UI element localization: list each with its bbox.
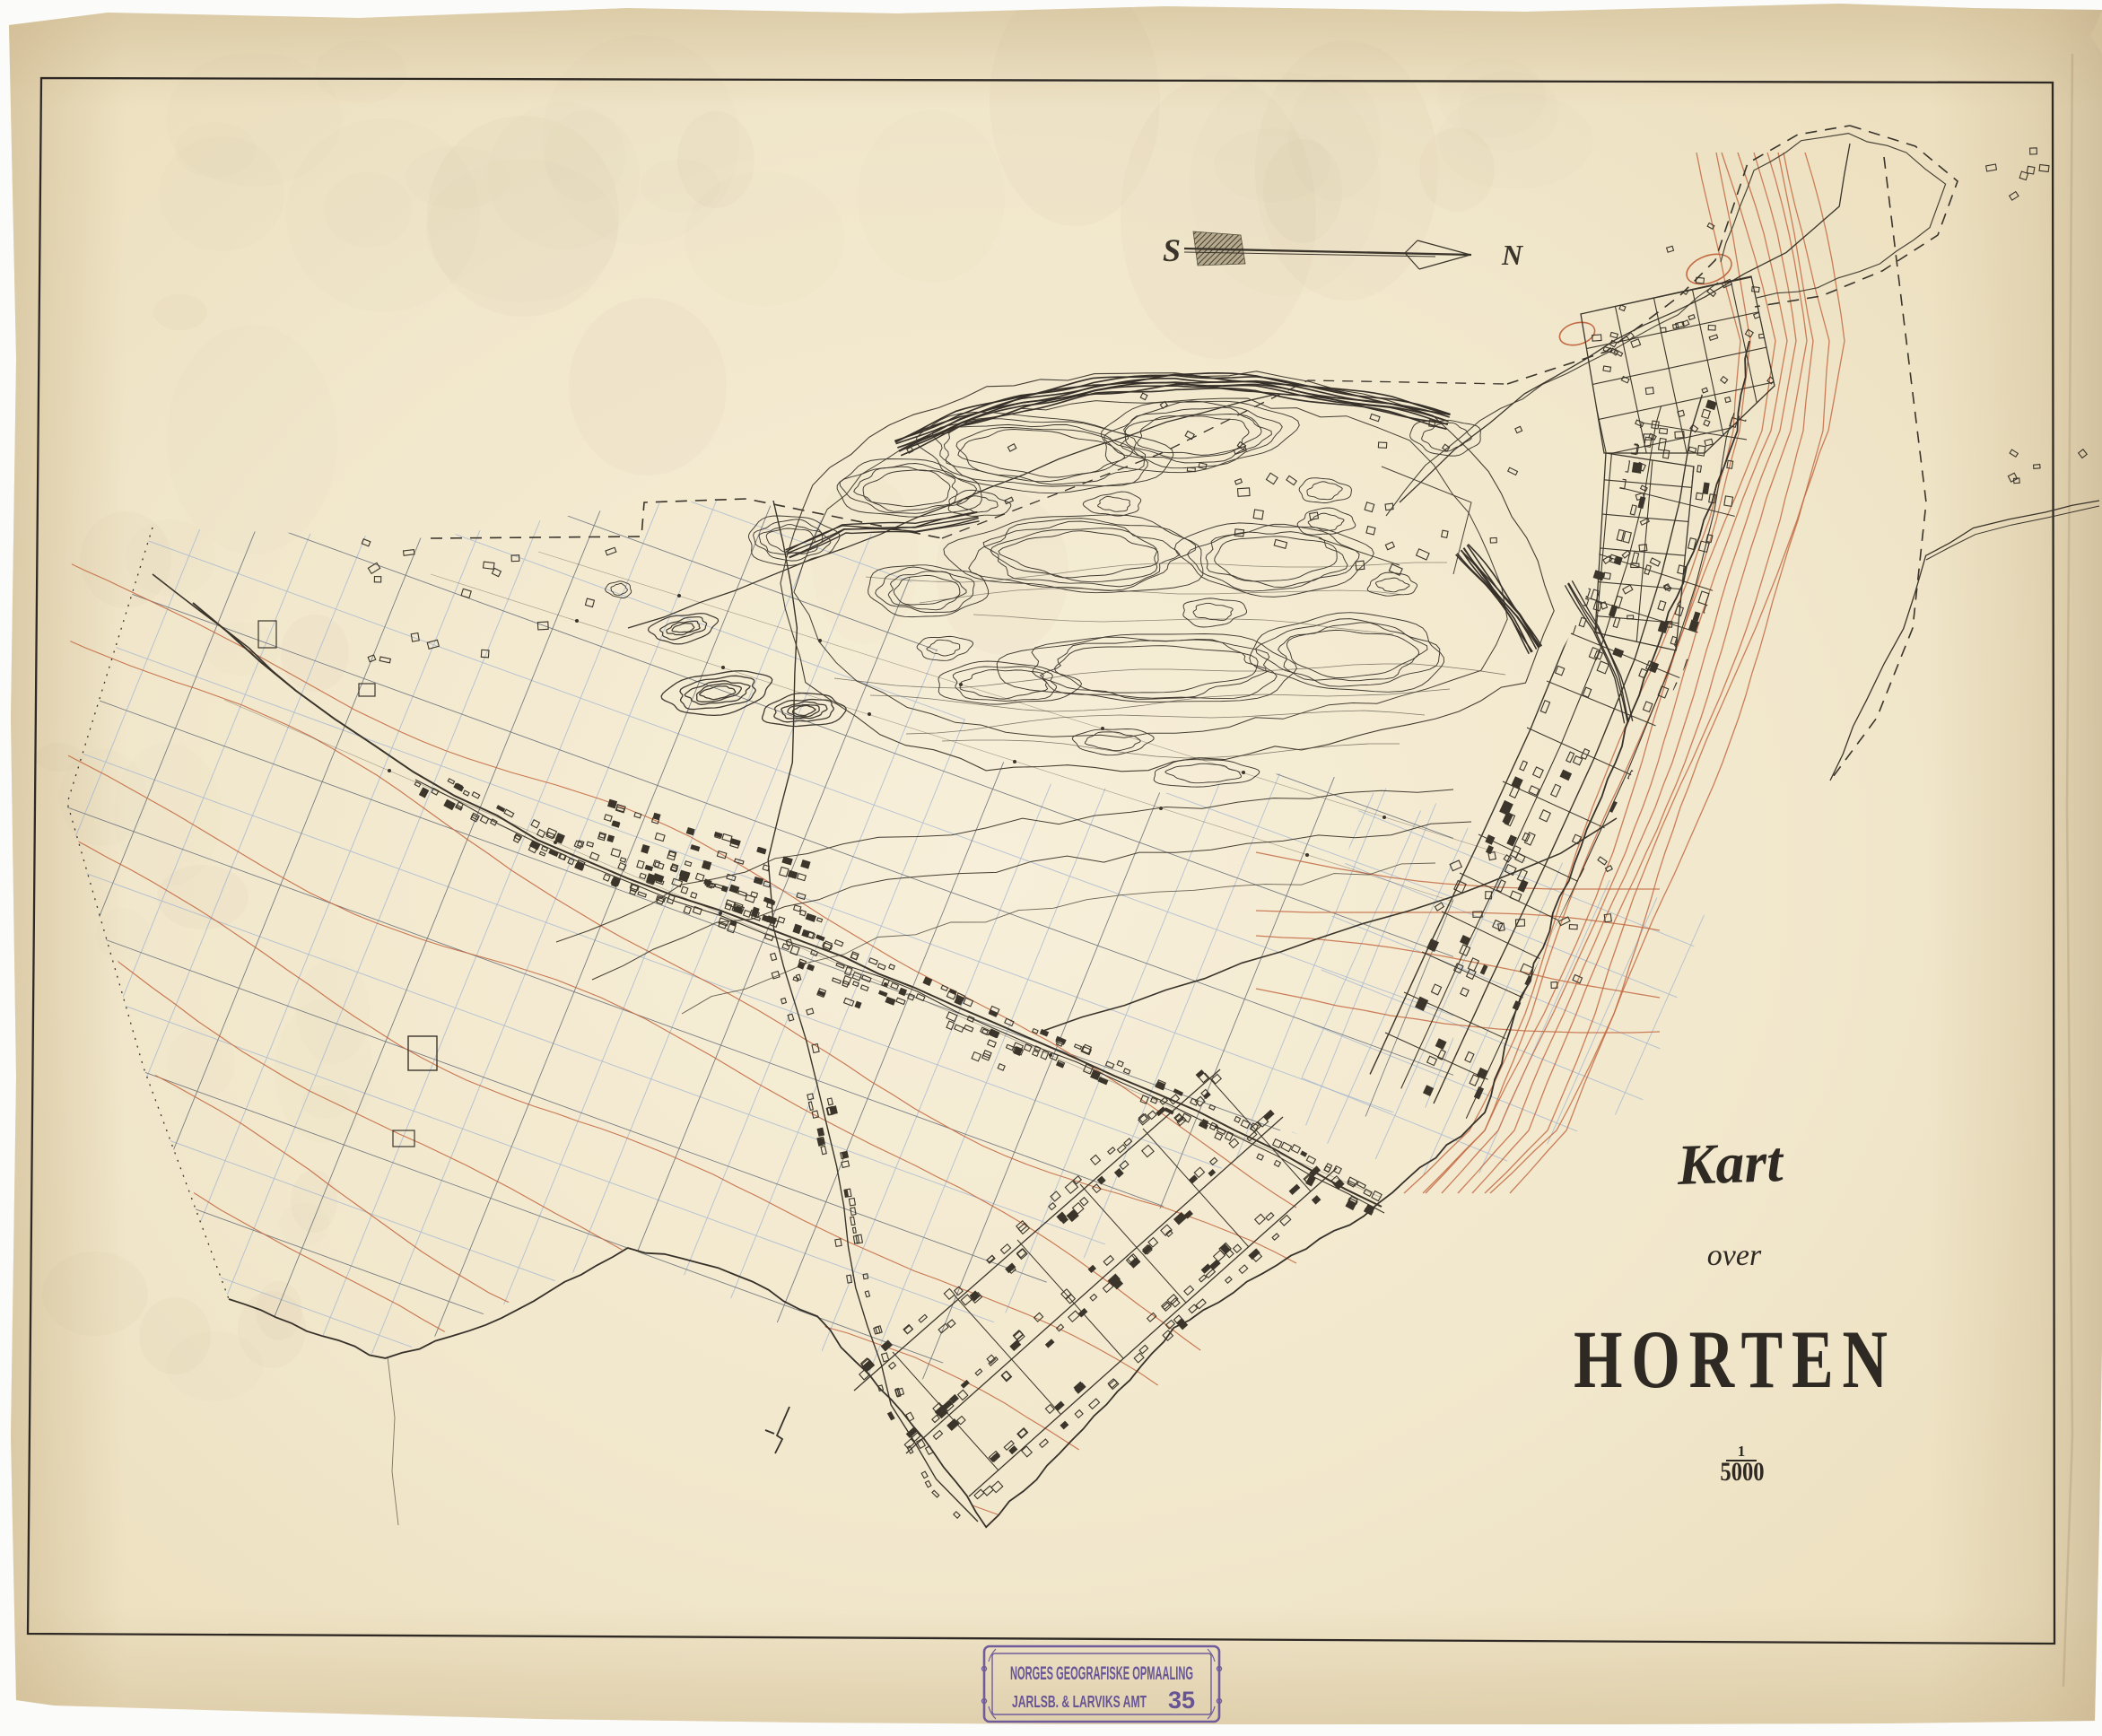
svg-text:NORGES GEOGRAFISKE OPMAALING: NORGES GEOGRAFISKE OPMAALING [1010,1663,1193,1684]
svg-text:35: 35 [1168,1687,1195,1714]
svg-text:N: N [1501,239,1524,271]
svg-text:HORTEN: HORTEN [1574,1313,1897,1405]
svg-text:JARLSB. & LARVIKS AMT: JARLSB. & LARVIKS AMT [1012,1693,1147,1711]
svg-text:over: over [1707,1239,1762,1272]
svg-text:S: S [1163,232,1181,268]
svg-text:Kart: Kart [1675,1130,1785,1197]
svg-text:5000: 5000 [1720,1457,1764,1487]
